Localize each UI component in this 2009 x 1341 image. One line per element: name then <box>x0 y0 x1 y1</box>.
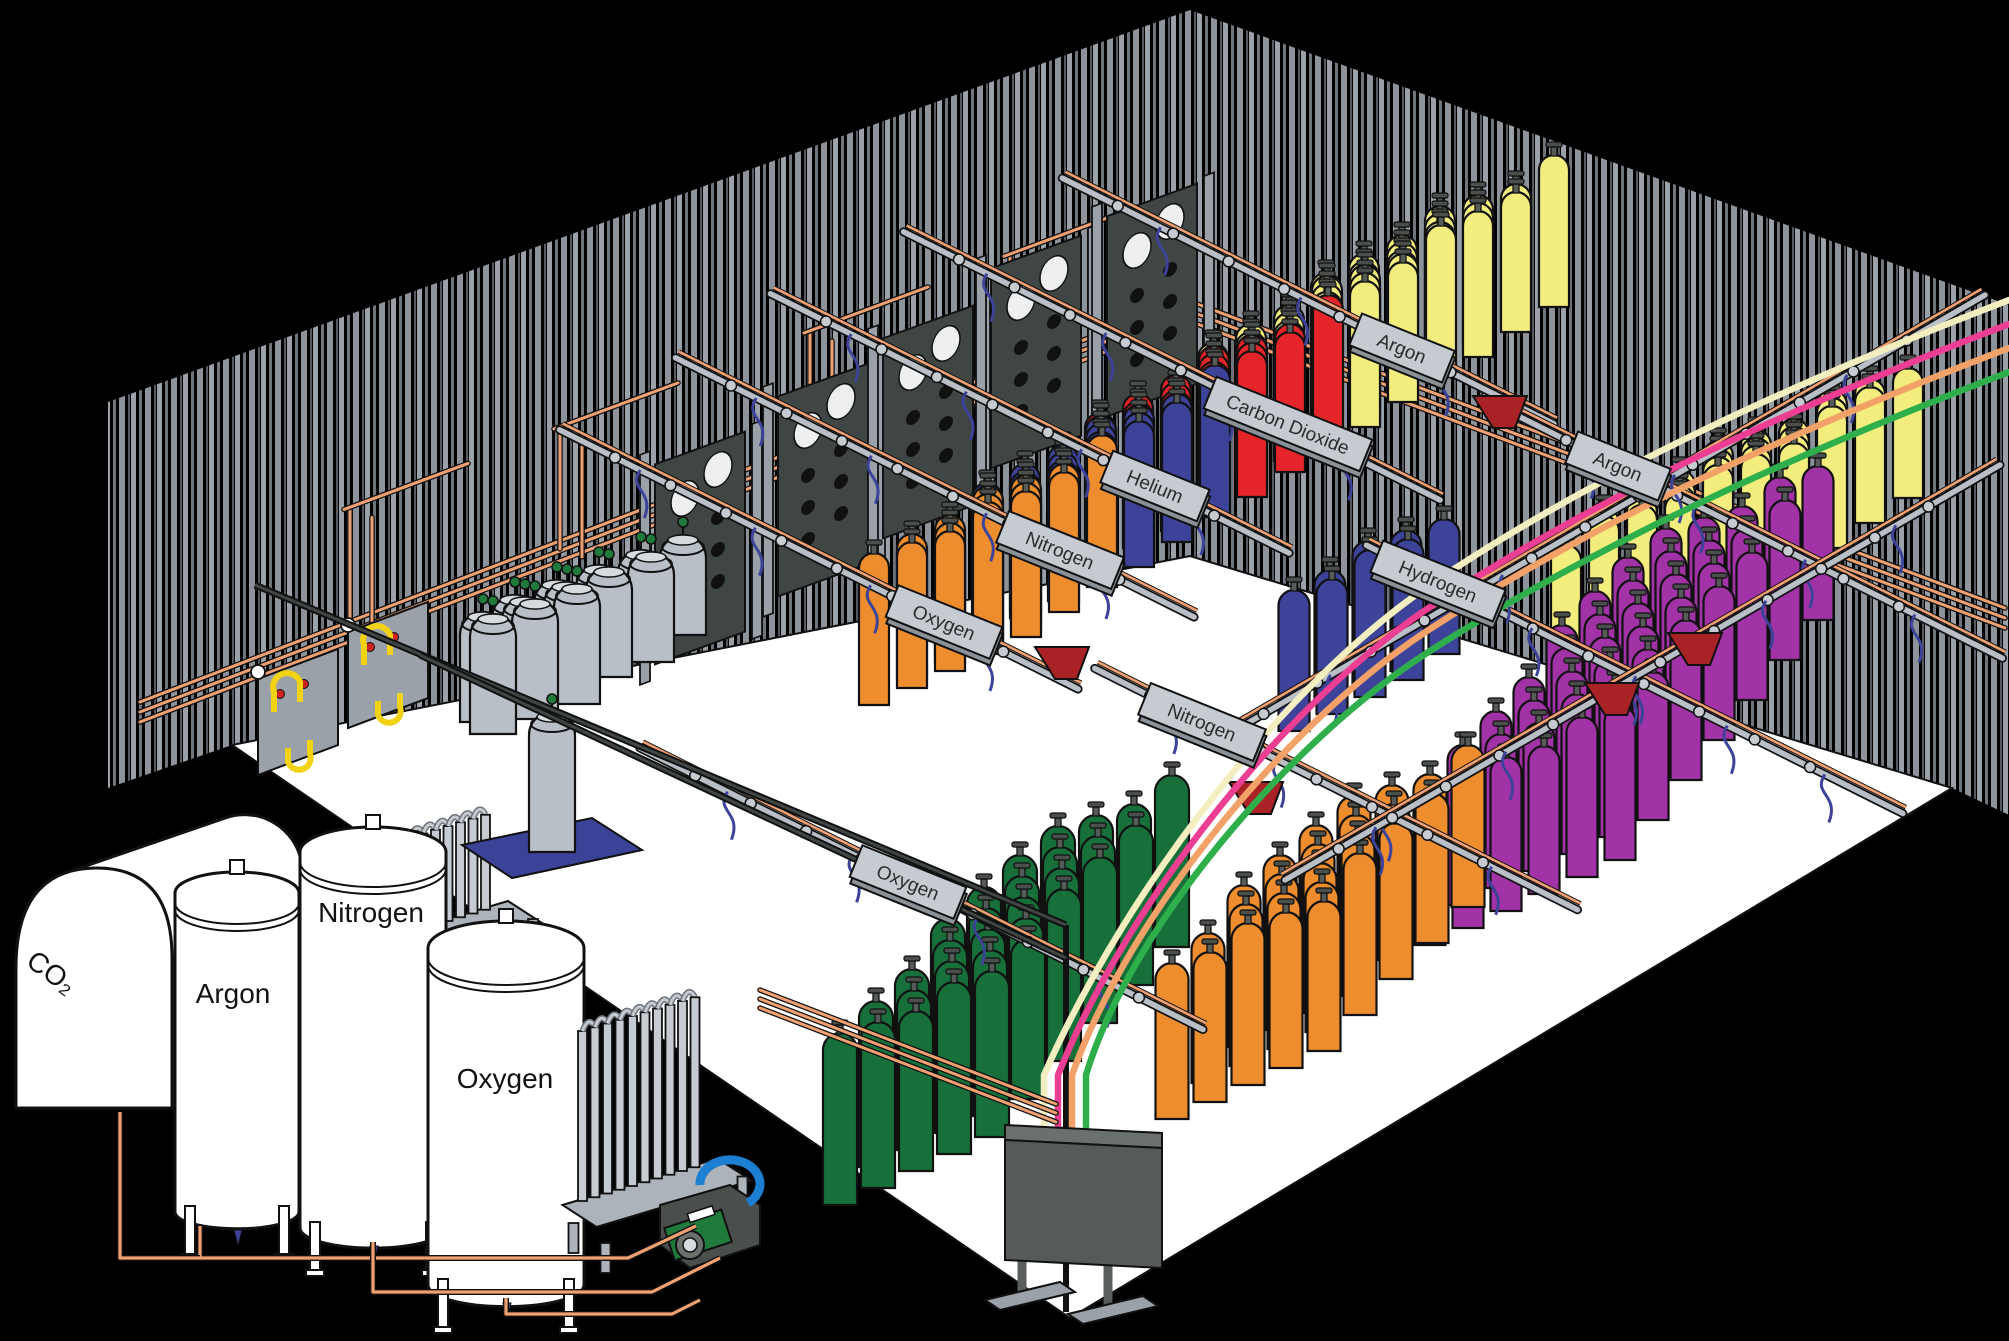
label-oxygen-tank: Oxygen <box>457 1063 554 1094</box>
rail-hook-icon <box>1279 284 1290 295</box>
rail-hook-icon <box>1311 774 1322 785</box>
rail-hook-icon <box>665 480 676 491</box>
rail-hook-icon <box>1175 365 1186 376</box>
rail-hook-icon <box>1580 522 1591 533</box>
rail-hook-icon <box>1893 601 1904 612</box>
rail-hook-icon <box>1838 573 1849 584</box>
scene-artwork <box>0 0 2009 1341</box>
rail-hook-icon <box>892 463 903 474</box>
rail-hook-icon <box>1694 706 1705 717</box>
rail-hook-icon <box>1209 510 1220 521</box>
rail-hook-icon <box>1727 518 1738 529</box>
label-argon-tank: Argon <box>196 978 271 1009</box>
rail-hook-icon <box>1223 256 1234 267</box>
rail-hook-icon <box>1816 563 1827 574</box>
rail-hook-icon <box>1120 337 1131 348</box>
gas-cylinder <box>1539 155 1569 307</box>
rail-hook-icon <box>1009 282 1020 293</box>
rail-hook-icon <box>1333 843 1344 854</box>
rail-hook-icon <box>1869 532 1880 543</box>
gas-filling-plant-illustration: Oxygen Nitrogen Helium Carbon Dioxide Ar… <box>0 0 2009 1341</box>
rail-hook-icon <box>1112 200 1123 211</box>
rail-hook-icon <box>821 316 832 327</box>
rail-hook-icon <box>876 344 887 355</box>
gas-cylinder <box>1567 717 1598 877</box>
rail-hook-icon <box>610 452 621 463</box>
rail-hook-icon <box>1923 501 1934 512</box>
rail-hook-icon <box>954 254 965 265</box>
gas-cylinder <box>1529 746 1560 894</box>
rail-hook-icon <box>1749 734 1760 745</box>
gas-cylinder <box>1380 823 1413 979</box>
rail-hook-icon <box>1064 309 1075 320</box>
rail-hook-icon <box>947 491 958 502</box>
nitrogen-bulk-tank <box>300 815 446 1276</box>
gas-cylinder <box>1605 706 1636 860</box>
rail-hook-icon <box>1782 545 1793 556</box>
rail-hook-icon <box>1133 992 1144 1003</box>
rail-hook-icon <box>1548 719 1559 730</box>
oxygen-bulk-tank <box>428 909 584 1333</box>
gas-cylinder <box>1737 552 1768 700</box>
rail-hook-icon <box>836 435 847 446</box>
label-nitrogen-tank: Nitrogen <box>318 897 424 928</box>
rail-hook-icon <box>987 399 998 410</box>
gas-cylinder <box>1501 192 1531 332</box>
rail-hook-icon <box>1477 857 1488 868</box>
gas-cylinder <box>823 1033 857 1205</box>
rail-hook-icon <box>1078 964 1089 975</box>
gas-cylinder <box>1803 466 1834 620</box>
gas-cylinder <box>1491 757 1522 911</box>
rail-hook-icon <box>1561 435 1572 446</box>
gas-cylinder <box>1308 901 1341 1051</box>
gas-cylinder <box>1011 939 1045 1099</box>
gas-cylinder <box>975 971 1009 1137</box>
rail-hook-icon <box>1168 228 1179 239</box>
gas-cylinder <box>1232 923 1265 1085</box>
rail-hook-icon <box>1387 812 1398 823</box>
gas-cylinder <box>899 1011 933 1171</box>
rail-hook-icon <box>1655 657 1666 668</box>
rail-hook-icon <box>726 380 737 391</box>
rail-hook-icon <box>1805 762 1816 773</box>
isometric-gas-plant-scene: Oxygen Nitrogen Helium Carbon Dioxide Ar… <box>0 0 2009 1341</box>
gas-cylinder <box>1270 912 1303 1068</box>
argon-bulk-tank <box>175 860 299 1260</box>
rail-hook-icon <box>998 646 1009 657</box>
gas-cylinder <box>1344 853 1377 1015</box>
rail-hook-icon <box>720 507 731 518</box>
rail-hook-icon <box>1638 678 1649 689</box>
rail-hook-icon <box>1258 708 1269 719</box>
rail-hook-icon <box>1440 781 1451 792</box>
rail-hook-icon <box>1422 829 1433 840</box>
rail-hook-icon <box>776 535 787 546</box>
rail-hook-icon <box>1583 651 1594 662</box>
gas-cylinder <box>1463 211 1493 357</box>
rail-hook-icon <box>831 563 842 574</box>
gas-cylinder <box>1156 963 1189 1119</box>
rail-hook-icon <box>1366 801 1377 812</box>
gas-cylinder <box>1416 793 1449 943</box>
rail-hook-icon <box>1334 311 1345 322</box>
rail-hook-icon <box>931 371 942 382</box>
rail-hook-icon <box>781 408 792 419</box>
rail-hook-icon <box>1042 427 1053 438</box>
